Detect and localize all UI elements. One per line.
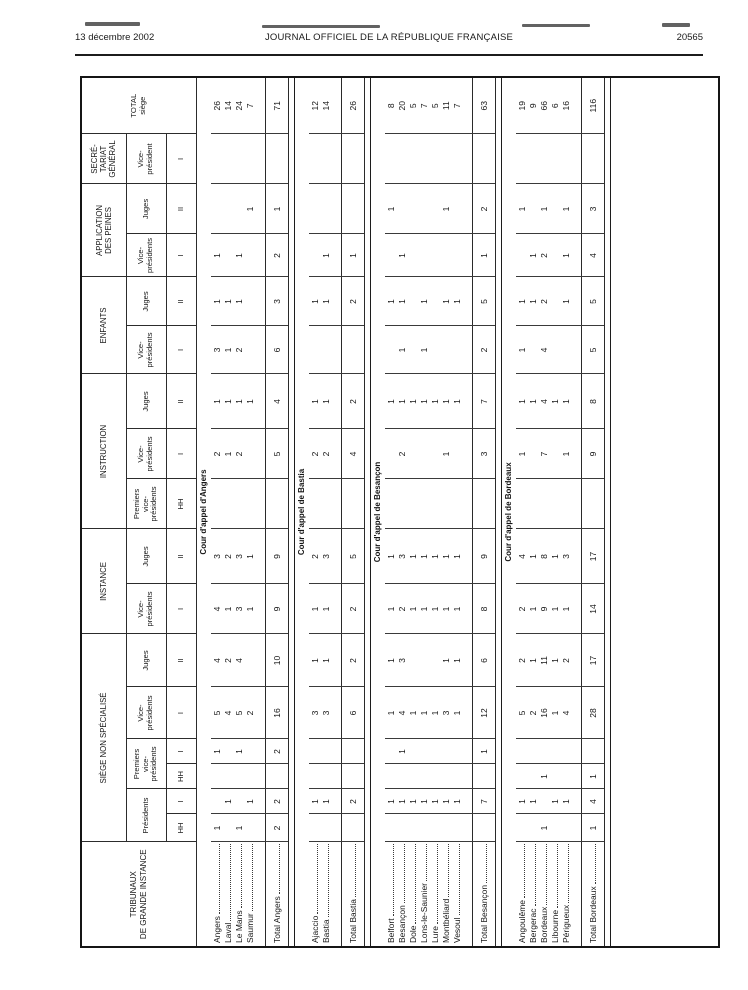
total-siege-cell: 20 [396,77,407,134]
value-cell [560,326,571,374]
value-cell [472,764,495,789]
value-cell: 2 [265,814,288,842]
value-cell [244,479,255,529]
row-label: Laval [223,843,233,947]
value-cell [320,479,331,529]
value-cell: 3 [233,529,244,584]
value-cell [516,739,527,764]
empty-cell [571,739,581,764]
value-cell: 3 [211,529,222,584]
value-cell [341,479,364,529]
value-cell: 5 [516,687,527,739]
row-label-text: Bastia [321,919,331,943]
section-banner-row: Cour d'appel de Bordeaux [501,77,516,947]
row-label-text: Libourne [550,910,560,943]
value-cell: 1 [222,584,233,634]
value-cell [549,326,560,374]
empty-cell [462,814,472,842]
empty-cell [331,134,341,184]
value-cell [211,789,222,814]
value-cell: 2 [341,634,364,687]
value-cell: 3 [440,687,451,739]
value-cell: 5 [341,529,364,584]
function-header-row: PrésidentsPremiers vice- présidentsVice-… [126,77,166,947]
value-cell: 1 [472,739,495,764]
tribunal-row: Bergerac121111119 [527,77,538,947]
value-cell: 1 [429,584,440,634]
row-label-text: Total Bordeaux [588,886,598,943]
function-header-cell: Juges [126,374,166,429]
value-cell [429,134,440,184]
function-header-cell: Juges [126,529,166,584]
empty-cell [462,687,472,739]
value-cell [341,764,364,789]
value-cell: 1 [527,789,538,814]
value-cell [320,184,331,234]
value-cell: 2 [472,184,495,234]
row-label: Le Mans [234,843,244,947]
value-cell [341,739,364,764]
leader-dots [458,845,460,916]
section-total-row: Total Besançon711268937251263 [472,77,495,947]
value-cell: 1 [440,374,451,429]
value-cell [244,234,255,277]
empty-cell [331,764,341,789]
row-label-cell [462,842,472,947]
tribunal-row: Belfort111111118 [385,77,396,947]
row-label: Belfort [386,843,396,947]
value-cell [407,277,418,326]
section-banner: Cour d'appel de Bordeaux [501,77,516,947]
value-cell [516,814,527,842]
value-cell [527,429,538,479]
empty-cell [571,584,581,634]
leader-dots [392,845,394,917]
value-cell [451,234,462,277]
value-cell: 2 [396,584,407,634]
value-cell [560,814,571,842]
value-cell: 1 [407,529,418,584]
leader-dots [414,845,416,924]
value-cell: 1 [222,789,233,814]
value-cell [309,479,320,529]
row-label-cell [331,842,341,947]
grade-header-cell: I [166,789,196,814]
empty-cell [255,529,265,584]
value-cell: 1 [211,374,222,429]
total-siege-cell: 26 [341,77,364,134]
value-cell: 16 [265,687,288,739]
empty-cell [255,184,265,234]
value-cell: 1 [418,374,429,429]
tribunal-row: Besançon1143232111120 [396,77,407,947]
value-cell [560,479,571,529]
leader-dots [567,845,569,903]
row-label-cell: Total Angers [265,842,288,947]
value-cell: 1 [320,634,331,687]
spacer-row [571,77,581,947]
journal-title: JOURNAL OFFICIEL DE LA RÉPUBLIQUE FRANÇA… [75,32,703,43]
value-cell: 1 [385,374,396,429]
row-label: Besançon [397,843,407,947]
empty-cell [255,77,265,134]
grade-header-cell: I [166,739,196,764]
value-cell [265,479,288,529]
empty-cell [462,584,472,634]
total-siege-cell: 7 [451,77,462,134]
value-cell [418,479,429,529]
value-cell: 2 [222,634,233,687]
total-siege-cell: 66 [538,77,549,134]
value-cell [385,134,396,184]
value-cell: 1 [418,277,429,326]
row-label: Bastia [321,843,331,947]
empty-cell [331,184,341,234]
value-cell [429,234,440,277]
value-cell: 2 [211,429,222,479]
empty-cell [462,374,472,429]
value-cell: 3 [233,584,244,634]
value-cell: 1 [560,584,571,634]
leader-dots [354,845,356,898]
value-cell: 6 [341,687,364,739]
value-cell [385,234,396,277]
row-label-text: Bergerac [528,909,538,944]
value-cell [244,814,255,842]
grade-header-cell: I [166,429,196,479]
empty-cell [331,77,341,134]
row-label-text: Laval [223,923,233,943]
row-label: Saumur [245,843,255,947]
tribunal-row: Angoulême152241111119 [516,77,527,947]
value-cell: 2 [341,277,364,326]
value-cell [440,234,451,277]
value-cell: 1 [396,277,407,326]
value-cell [396,764,407,789]
row-label-cell: Total Besançon [472,842,495,947]
tribunal-row: Laval14212111114 [222,77,233,947]
total-siege-cell: 16 [560,77,571,134]
empty-cell [331,789,341,814]
row-label-cell: Laval [222,842,233,947]
leader-dots [523,845,525,898]
value-cell: 1 [560,374,571,429]
value-cell: 1 [429,687,440,739]
value-cell: 1 [560,277,571,326]
empty-cell [255,814,265,842]
value-cell: 1 [396,374,407,429]
value-cell: 1 [222,277,233,326]
total-siege-cell: 26 [211,77,222,134]
value-cell [222,134,233,184]
value-cell: 3 [211,326,222,374]
value-cell [549,739,560,764]
row-label-cell: Total Bastia [341,842,364,947]
value-cell [385,326,396,374]
value-cell: 1 [451,584,462,634]
value-cell: 5 [211,687,222,739]
total-siege-cell: 24 [233,77,244,134]
value-cell: 1 [233,234,244,277]
row-label-text: Angoulême [517,900,527,943]
row-label: Lure [430,843,440,947]
row-label-cell: Périgueux [560,842,571,947]
value-cell: 1 [320,277,331,326]
grade-header-cell: I [166,687,196,739]
value-cell: 4 [516,529,527,584]
grade-header-cell: II [166,529,196,584]
value-cell: 1 [222,429,233,479]
tribunal-row: Lure111115 [429,77,440,947]
value-cell [418,764,429,789]
value-cell: 4 [341,429,364,479]
value-cell [549,184,560,234]
value-cell [341,184,364,234]
value-cell: 1 [549,374,560,429]
grade-header-cell: II [166,184,196,234]
value-cell [211,184,222,234]
value-cell: 8 [538,529,549,584]
value-cell: 1 [233,277,244,326]
value-cell: 1 [396,739,407,764]
tribunal-row: Ajaccio1311221112 [309,77,320,947]
row-label-text: Angers [212,916,222,943]
row-label-cell: Montbéliard [440,842,451,947]
grade-header-cell: II [166,634,196,687]
empty-cell [331,234,341,277]
value-cell: 12 [472,687,495,739]
value-cell [244,429,255,479]
empty-cell [331,529,341,584]
value-cell: 3 [581,184,604,234]
value-cell: 1 [429,374,440,429]
value-cell: 1 [527,234,538,277]
leader-dots [594,845,596,885]
value-cell [233,764,244,789]
value-cell [396,134,407,184]
table-body: Cour d'appel d'AngersAngers1154432131126… [196,77,719,947]
empty-cell [571,687,581,739]
leader-dots [425,845,427,881]
page-header: 13 décembre 2002 JOURNAL OFFICIEL DE LA … [75,32,703,48]
value-cell [538,789,549,814]
value-cell: 1 [560,234,571,277]
value-cell [244,764,255,789]
value-cell [429,764,440,789]
value-cell: 1 [516,184,527,234]
empty-cell [331,479,341,529]
value-cell [527,184,538,234]
value-cell [516,234,527,277]
value-cell: 1 [309,584,320,634]
section-banner-row: Cour d'appel d'Angers [196,77,211,947]
function-header-cell: Vice- présidents [126,429,166,479]
value-cell [341,134,364,184]
tribunal-row: Saumur1211117 [244,77,255,947]
value-cell [309,739,320,764]
empty-cell [255,234,265,277]
value-cell: 3 [309,687,320,739]
empty-cell [462,234,472,277]
row-label-text: Montbéliard [441,899,451,943]
row-label-cell: Bordeaux [538,842,549,947]
value-cell: 17 [581,634,604,687]
grade-header-row: HHIHHIIIIIIIHHIIIIIIIIII [166,77,196,947]
value-cell [560,764,571,789]
value-cell [429,326,440,374]
leader-dots [403,845,405,904]
value-cell: 4 [211,634,222,687]
value-cell: 1 [451,277,462,326]
leader-dots [485,845,487,883]
value-cell [538,479,549,529]
value-cell: 3 [320,687,331,739]
value-cell [244,739,255,764]
spacer-row [255,77,265,947]
value-cell: 1 [440,429,451,479]
empty-cell [571,184,581,234]
value-cell [309,134,320,184]
empty-cell [462,739,472,764]
row-label-text: Belfort [386,918,396,943]
group-header-cell: APPLICATION DES PEINES [81,184,126,277]
value-cell: 2 [309,429,320,479]
row-label-cell [571,842,581,947]
value-cell: 3 [396,529,407,584]
value-cell: 1 [418,789,429,814]
value-cell: 1 [516,789,527,814]
value-cell: 2 [396,429,407,479]
empty-cell [571,479,581,529]
value-cell [549,277,560,326]
value-cell: 7 [472,374,495,429]
empty-cell [331,739,341,764]
total-siege-cell: 5 [407,77,418,134]
value-cell [418,739,429,764]
value-cell: 2 [233,429,244,479]
function-header-cell: Vice- président [126,134,166,184]
empty-cell [571,134,581,184]
value-cell: 1 [440,584,451,634]
value-cell [233,479,244,529]
grade-header-cell: HH [166,814,196,842]
value-cell: 8 [472,584,495,634]
value-cell: 1 [407,789,418,814]
leader-dots [545,845,547,905]
value-cell [527,739,538,764]
value-cell: 1 [581,764,604,789]
value-cell: 9 [265,584,288,634]
value-cell: 7 [472,789,495,814]
value-cell: 1 [581,814,604,842]
value-cell [320,134,331,184]
value-cell [581,134,604,184]
value-cell [581,739,604,764]
empty-cell [462,529,472,584]
value-cell: 10 [265,634,288,687]
row-label-cell: Lons-le-Saunier [418,842,429,947]
value-cell: 2 [265,789,288,814]
total-siege-cell: 63 [472,77,495,134]
value-cell [341,814,364,842]
value-cell [222,814,233,842]
value-cell [451,134,462,184]
table-header: TRIBUNAUX DE GRANDE INSTANCESIÈGE NON SP… [81,77,196,947]
value-cell [429,814,440,842]
row-label-cell: Ajaccio [309,842,320,947]
value-cell: 7 [538,429,549,479]
value-cell [429,634,440,687]
group-header-cell: INSTRUCTION [81,374,126,529]
row-label-cell: Dole [407,842,418,947]
row-label-cell: Libourne [549,842,560,947]
empty-cell [571,529,581,584]
function-header-cell: Présidents [126,789,166,842]
value-cell: 1 [265,184,288,234]
value-cell: 8 [581,374,604,429]
value-cell: 1 [538,184,549,234]
value-cell: 1 [244,529,255,584]
value-cell: 1 [385,277,396,326]
group-header-cell: SECRÉ- TARIAT GÉNÉRAL [81,134,126,184]
value-cell [396,814,407,842]
value-cell: 1 [211,234,222,277]
row-label-text: Périgueux [561,905,571,943]
row-label: Ajaccio [310,843,320,947]
value-cell [222,184,233,234]
total-siege-cell: 12 [309,77,320,134]
total-siege-cell: 6 [549,77,560,134]
function-header-cell: Vice- présidents [126,326,166,374]
value-cell [451,326,462,374]
value-cell [440,739,451,764]
value-cell [560,739,571,764]
value-cell [527,479,538,529]
empty-cell [255,634,265,687]
row-label-text: Besançon [397,905,407,943]
value-cell: 1 [320,584,331,634]
value-cell [385,429,396,479]
value-cell [341,326,364,374]
value-cell [418,634,429,687]
empty-cell [331,277,341,326]
value-cell [309,184,320,234]
value-cell [549,479,560,529]
tribunal-row: Vesoul11111117 [451,77,462,947]
group-header-cell: SIÈGE NON SPÉCIALISÉ [81,634,126,842]
value-cell [516,764,527,789]
row-label-text: Vesoul [452,917,462,943]
value-cell: 1 [233,814,244,842]
value-cell [233,134,244,184]
scan-artifact [85,22,140,26]
value-cell: 1 [549,687,560,739]
row-label-cell: Saumur [244,842,255,947]
scan-artifact [662,23,690,27]
value-cell [385,764,396,789]
value-cell: 1 [472,234,495,277]
value-cell: 5 [472,277,495,326]
tribunal-row: Bordeaux1116119874422166 [538,77,549,947]
value-cell [407,234,418,277]
value-cell [265,764,288,789]
value-cell: 4 [581,789,604,814]
value-cell: 3 [320,529,331,584]
empty-cell [571,789,581,814]
value-cell [309,326,320,374]
empty-cell [331,374,341,429]
value-cell: 6 [472,634,495,687]
